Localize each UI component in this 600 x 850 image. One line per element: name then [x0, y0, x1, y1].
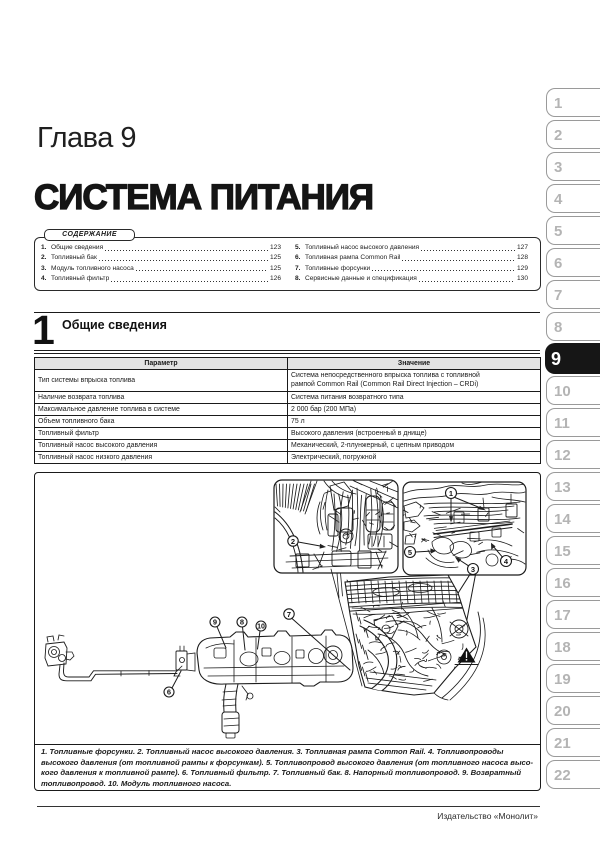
svg-text:9: 9: [213, 618, 217, 627]
svg-text:7: 7: [287, 610, 291, 619]
svg-text:10: 10: [257, 624, 265, 631]
svg-text:1: 1: [449, 489, 453, 498]
svg-text:8: 8: [240, 618, 244, 627]
svg-text:2: 2: [291, 537, 295, 546]
svg-text:3: 3: [471, 565, 475, 574]
svg-text:5: 5: [408, 548, 412, 557]
svg-text:6: 6: [167, 688, 171, 697]
